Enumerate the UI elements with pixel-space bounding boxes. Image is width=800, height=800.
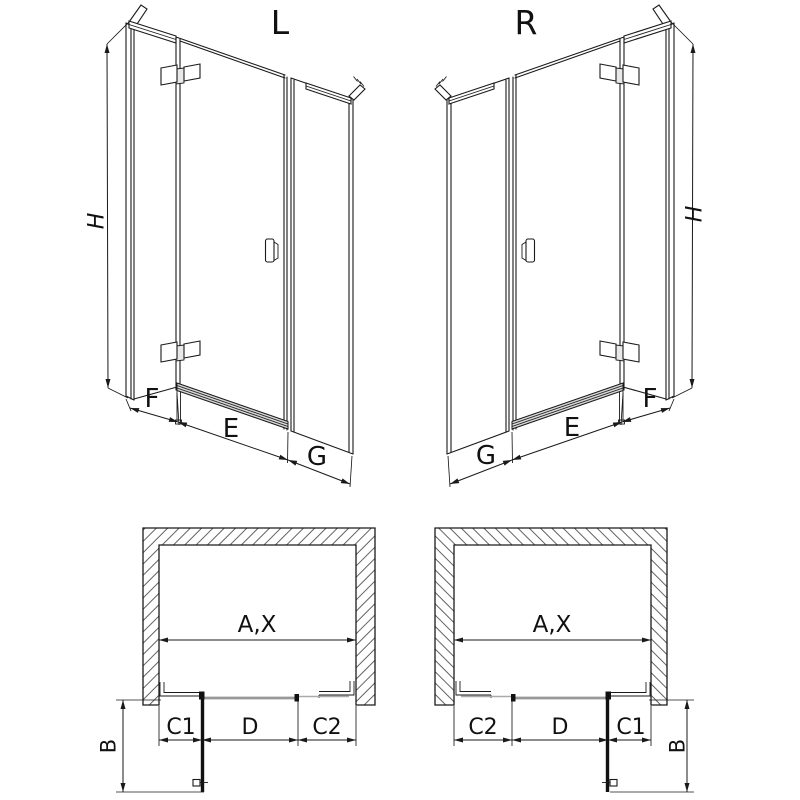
shower-enclosure-diagram-page: L R H H F E G G E F A,X C1 D C2 B A,X C2… xyxy=(0,0,800,800)
label-d-right: D xyxy=(552,715,569,740)
label-c2-left: C2 xyxy=(312,715,341,740)
hinged-door xyxy=(176,37,288,430)
label-width-right: A,X xyxy=(533,612,572,638)
label-c1-left: C1 xyxy=(166,715,195,740)
door-handle-icon xyxy=(266,239,279,262)
plan-right-geometry xyxy=(435,528,667,792)
label-dim-g-right: G xyxy=(476,441,496,471)
label-c2-right: C2 xyxy=(468,715,497,740)
label-width-left: A,X xyxy=(238,612,277,638)
support-bar-right xyxy=(306,77,365,105)
label-depth-right: B xyxy=(665,739,689,753)
door-pivot xyxy=(199,692,205,700)
label-dim-e-left: E xyxy=(223,414,239,444)
label-height-left: H xyxy=(85,213,110,230)
wall-anchor-bracket xyxy=(349,85,365,100)
perspective-left-geometry xyxy=(126,5,365,454)
fixed-panel xyxy=(291,78,353,454)
entrance-profiles xyxy=(160,681,354,698)
label-dim-g-left: G xyxy=(307,442,327,472)
plan-left-geometry xyxy=(143,528,375,792)
open-door-leaf xyxy=(193,692,208,793)
label-dim-e-right: E xyxy=(564,413,580,443)
technical-diagram-canvas: L R H H F E G G E F A,X C1 D C2 B A,X C2… xyxy=(0,0,800,800)
label-d-left: D xyxy=(242,715,259,740)
door-handle-plan xyxy=(193,780,200,787)
variant-title-left: L xyxy=(271,3,290,42)
panel-connector xyxy=(295,694,300,702)
label-dim-f-left: F xyxy=(145,384,160,414)
side-wall-panel xyxy=(126,5,177,400)
label-dim-f-right: F xyxy=(643,384,658,414)
label-c1-right: C1 xyxy=(616,715,645,740)
label-depth-left: B xyxy=(96,739,120,753)
label-height-right: H xyxy=(683,206,708,223)
perspective-right-geometry xyxy=(435,5,674,454)
support-bar-left xyxy=(129,21,176,43)
variant-title-right: R xyxy=(515,3,538,42)
